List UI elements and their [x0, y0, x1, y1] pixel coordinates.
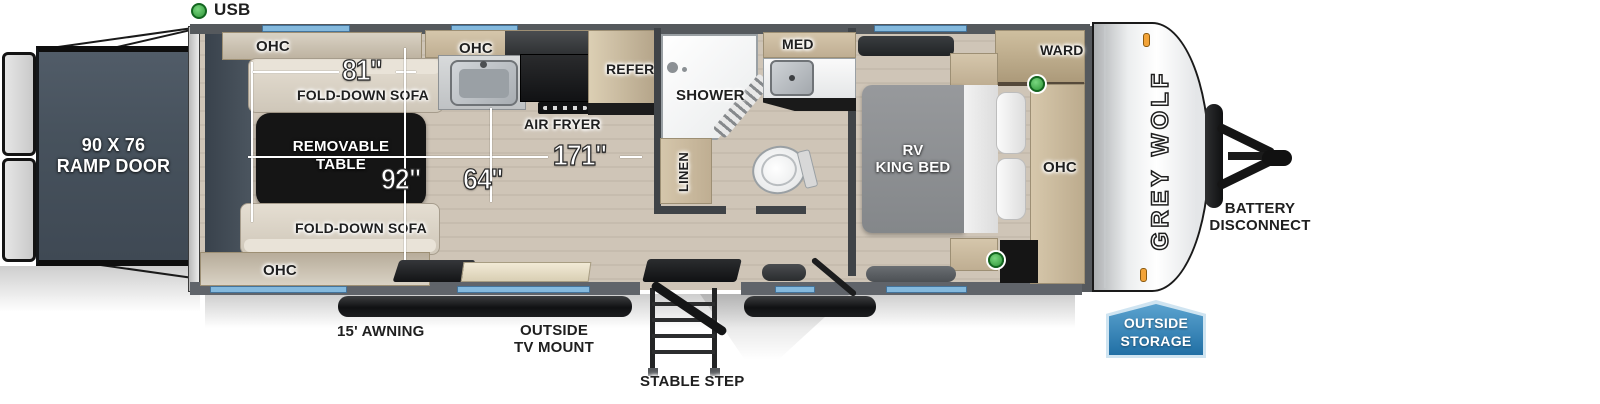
- outside-speaker: [762, 264, 806, 281]
- outside-storage-badge-line1: OUTSIDE: [1124, 315, 1188, 331]
- rv-king-bed-label-line1: RV: [903, 142, 924, 159]
- patio-rail-bottom: [2, 158, 36, 262]
- cooktop: [520, 54, 592, 102]
- medicine-cabinet-label: MED: [782, 37, 814, 52]
- dim-line-171-left: [248, 156, 548, 158]
- outside-tv-mount-label: OUTSIDE TV MOUNT: [494, 323, 614, 356]
- rv-king-bed-sheet: [964, 85, 998, 233]
- bedroom-wall-left-lower: [848, 214, 856, 276]
- grey-wolf-logo: GREY WOLF: [1147, 65, 1173, 255]
- rear-wall: [188, 26, 200, 292]
- bed-pillow-bottom: [996, 158, 1026, 220]
- stable-step-label: STABLE STEP: [640, 374, 744, 390]
- shower-label: SHOWER: [676, 88, 745, 104]
- usb-legend-label: USB: [214, 1, 251, 19]
- removable-table-label-line2: TABLE: [316, 156, 366, 173]
- window-top-bedroom: [874, 25, 967, 32]
- body-ground-shadow: [205, 294, 1075, 328]
- removable-table-label-line1: REMOVABLE: [293, 138, 390, 155]
- stable-step-rail-left: [650, 288, 655, 370]
- wardrobe-label: WARD: [1040, 43, 1084, 58]
- dim-tick-rear: [251, 62, 253, 222]
- outside-tv-mount-label-line2: TV MOUNT: [514, 339, 594, 356]
- showerhead-icon: [667, 62, 678, 73]
- window-bottom-center: [457, 286, 590, 293]
- battery-disconnect-label: BATTERY DISCONNECT: [1196, 201, 1324, 234]
- outside-tv-mount-label-line1: OUTSIDE: [520, 322, 588, 339]
- marker-light-top: [1143, 33, 1150, 47]
- patio-rail-top: [2, 52, 36, 156]
- window-bottom-hall: [775, 286, 815, 293]
- outside-storage-badge-label: OUTSIDE STORAGE: [1109, 315, 1203, 350]
- overhead-cabinet-top-label: OHC: [256, 39, 290, 55]
- window-bottom-living: [210, 286, 347, 293]
- bedroom-black-cabinet: [1000, 240, 1038, 283]
- battery-disconnect-label-line1: BATTERY: [1225, 200, 1296, 217]
- awning-label: 15' AWNING: [337, 324, 425, 340]
- bedroom-overhead-cabinet-label: OHC: [1043, 160, 1077, 176]
- usb-port-bedroom-bottom: [988, 252, 1004, 268]
- dim-aisle-width: 64": [463, 166, 503, 195]
- stable-step-rung-4: [652, 350, 715, 354]
- bed-headboard-shelf: [858, 36, 954, 56]
- battery-disconnect-label-line2: DISCONNECT: [1209, 217, 1310, 234]
- outside-storage-badge-line2: STORAGE: [1120, 333, 1191, 349]
- fold-down-sofa-bottom-back: [244, 239, 436, 252]
- fold-down-sofa-top-label: FOLD-DOWN SOFA: [297, 88, 429, 103]
- bed-foot-bolster: [866, 266, 956, 282]
- dim-interior-width: 92": [381, 166, 421, 195]
- rv-king-bed-label: RV KING BED: [862, 142, 964, 177]
- front-cap-seam: [1104, 26, 1106, 288]
- window-top-living: [262, 25, 350, 32]
- outside-tv-mount-box: [461, 262, 592, 282]
- overhead-cabinet-top: [222, 32, 422, 60]
- overhead-cabinet-bottom-label: OHC: [263, 263, 297, 279]
- refrigerator-base: [588, 103, 660, 115]
- awning-tube-right: [744, 296, 876, 317]
- dim-line-81-left: [253, 71, 339, 73]
- usb-port-bedroom-top: [1029, 76, 1045, 92]
- ramp-door-label-line1: 90 X 76: [82, 135, 145, 155]
- awning-tube-left: [338, 296, 632, 317]
- stable-step-rung-3: [652, 334, 715, 338]
- dim-line-81-right: [396, 71, 416, 73]
- entry-door-mat: [642, 259, 742, 282]
- ramp-door-label-line2: RAMP DOOR: [57, 156, 170, 176]
- rv-king-bed-label-line2: KING BED: [876, 159, 951, 176]
- bath-sink-drain: [789, 75, 795, 81]
- kitchen-faucet: [480, 61, 487, 68]
- bathroom-wall-bottom-left: [654, 206, 726, 214]
- bedroom-overhead-cabinet: [1030, 84, 1085, 284]
- bathroom-wall-bottom-right: [756, 206, 806, 214]
- air-fryer-label: AIR FRYER: [524, 117, 601, 132]
- linen-closet-label: LINEN: [677, 143, 691, 201]
- nightstand-top: [950, 53, 998, 86]
- ramp-door-label: 90 X 76 RAMP DOOR: [46, 135, 181, 176]
- dim-cargo-length: 171": [553, 142, 606, 171]
- hitch-coupler: [1262, 150, 1292, 166]
- refrigerator-label: REFER: [606, 62, 654, 77]
- dim-line-171-right: [620, 156, 642, 158]
- kitchen-sink-basin: [459, 69, 509, 98]
- fold-down-sofa-bottom-label: FOLD-DOWN SOFA: [295, 221, 427, 236]
- dim-sofa-length: 81": [342, 57, 382, 86]
- airfryer-knobs: [543, 106, 587, 110]
- usb-legend-dot: [191, 3, 207, 19]
- hitch-jack-post: [1205, 104, 1223, 208]
- bed-pillow-top: [996, 92, 1026, 154]
- floorplan-diagram: USB 90 X 76 RAMP DOOR OHC FOLD-DOWN SOFA…: [0, 0, 1600, 404]
- window-bottom-bedroom: [886, 286, 967, 293]
- marker-light-bottom: [1140, 268, 1147, 282]
